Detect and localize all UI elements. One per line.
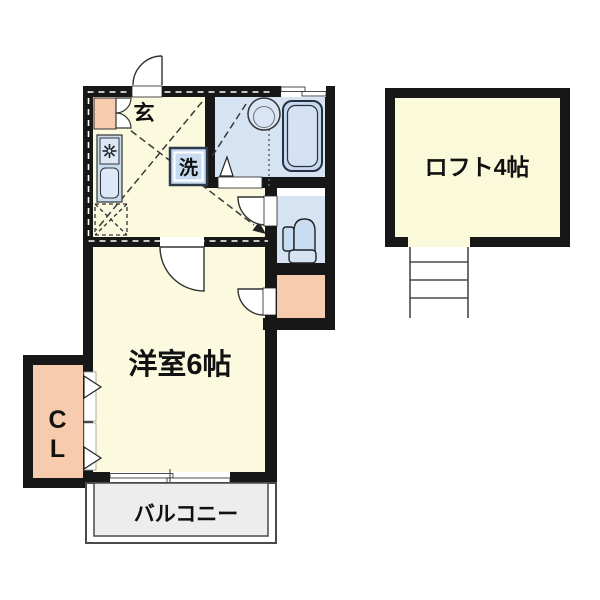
main-room-label: 洋室6帖 <box>128 347 231 381</box>
toilet-door-leaf <box>264 196 277 226</box>
balcony-label: バルコニー <box>134 503 239 526</box>
room-doorway <box>160 237 204 247</box>
washer-label: 洗 <box>179 156 198 179</box>
loft-ladder-icon <box>410 247 468 318</box>
wall-toilet-bottom <box>265 263 335 275</box>
storage-area <box>277 275 325 318</box>
closet-label-l: L <box>50 435 65 463</box>
storage-door-leaf <box>263 288 276 315</box>
wall-storage-bottom <box>263 318 335 330</box>
closet-label-c: C <box>48 406 66 434</box>
floor-plan-page: 玄 洗 洋室6帖 C L バルコニー ロフト4帖 <box>0 0 600 600</box>
bathroom-doorway <box>218 177 262 188</box>
entrance-door-swing-arc <box>133 56 162 85</box>
bathtub-inner <box>288 106 318 167</box>
floor-plan-canvas: 玄 洗 洋室6帖 C L バルコニー ロフト4帖 <box>0 0 600 600</box>
wall-room-right <box>265 330 277 483</box>
bathroom-window-pane <box>281 87 305 92</box>
shoe-cabinet <box>94 98 116 129</box>
entrance-doorway <box>132 86 162 97</box>
stove-burner-icon <box>103 144 117 158</box>
balcony-window-pane2 <box>167 478 230 483</box>
washbasin-icon <box>248 98 280 130</box>
wall-right-upper <box>325 86 335 330</box>
loft-ladder-opening <box>408 236 470 247</box>
genkan-label: 玄 <box>134 101 155 125</box>
loft-label: ロフト4帖 <box>425 154 530 180</box>
loft-plan <box>385 88 570 318</box>
balcony-window-pane <box>110 474 173 479</box>
bathroom-window-pane2 <box>302 92 326 97</box>
sink-icon <box>101 168 119 198</box>
